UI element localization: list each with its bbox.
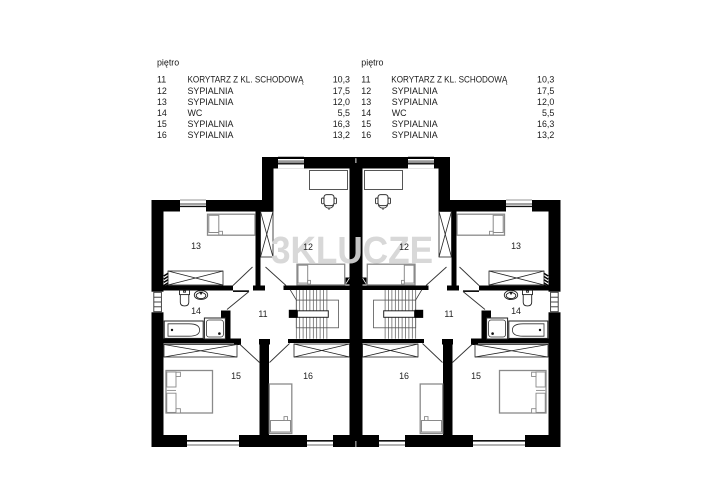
svg-text:KORYTARZ Z KL. SCHODOWĄ: KORYTARZ Z KL. SCHODOWĄ xyxy=(188,75,304,85)
svg-text:16: 16 xyxy=(157,130,167,140)
svg-text:11: 11 xyxy=(361,75,370,85)
svg-text:17,5: 17,5 xyxy=(537,86,554,96)
svg-text:14: 14 xyxy=(157,108,167,118)
svg-text:14: 14 xyxy=(511,306,521,316)
svg-text:WC: WC xyxy=(188,108,203,118)
svg-text:13: 13 xyxy=(361,97,371,107)
svg-text:5,5: 5,5 xyxy=(542,108,554,118)
svg-text:15: 15 xyxy=(471,371,481,381)
svg-text:15: 15 xyxy=(157,119,167,129)
svg-text:17,5: 17,5 xyxy=(333,86,350,96)
svg-text:15: 15 xyxy=(231,371,241,381)
svg-text:12: 12 xyxy=(399,242,409,252)
svg-text:11: 11 xyxy=(157,75,166,85)
svg-text:12: 12 xyxy=(157,86,167,96)
svg-text:KORYTARZ Z KL. SCHODOWĄ: KORYTARZ Z KL. SCHODOWĄ xyxy=(391,75,507,85)
svg-text:13: 13 xyxy=(157,97,167,107)
svg-text:SYPIALNIA: SYPIALNIA xyxy=(188,86,234,96)
svg-text:SYPIALNIA: SYPIALNIA xyxy=(392,130,438,140)
svg-text:16,3: 16,3 xyxy=(333,119,350,129)
svg-text:12: 12 xyxy=(361,86,371,96)
svg-text:SYPIALNIA: SYPIALNIA xyxy=(188,119,234,129)
svg-text:5,5: 5,5 xyxy=(338,108,350,118)
svg-text:SYPIALNIA: SYPIALNIA xyxy=(392,86,438,96)
svg-text:WC: WC xyxy=(392,108,407,118)
svg-text:16: 16 xyxy=(303,371,313,381)
svg-text:16: 16 xyxy=(361,130,371,140)
svg-text:SYPIALNIA: SYPIALNIA xyxy=(392,119,438,129)
svg-text:16: 16 xyxy=(399,371,409,381)
svg-text:12: 12 xyxy=(303,242,313,252)
svg-text:piętro: piętro xyxy=(157,57,179,67)
svg-text:SYPIALNIA: SYPIALNIA xyxy=(188,97,234,107)
svg-text:13: 13 xyxy=(191,241,201,251)
svg-text:SYPIALNIA: SYPIALNIA xyxy=(188,130,234,140)
svg-text:12,0: 12,0 xyxy=(537,97,554,107)
svg-text:14: 14 xyxy=(191,306,201,316)
svg-text:12,0: 12,0 xyxy=(333,97,350,107)
svg-text:SYPIALNIA: SYPIALNIA xyxy=(392,97,438,107)
svg-text:10,3: 10,3 xyxy=(333,75,350,85)
svg-text:14: 14 xyxy=(361,108,371,118)
svg-text:piętro: piętro xyxy=(361,57,383,67)
svg-text:11: 11 xyxy=(258,309,267,319)
svg-text:10,3: 10,3 xyxy=(537,75,554,85)
svg-text:13,2: 13,2 xyxy=(537,130,554,140)
svg-text:11: 11 xyxy=(444,309,453,319)
svg-text:13: 13 xyxy=(511,241,521,251)
svg-text:13,2: 13,2 xyxy=(333,130,350,140)
svg-text:15: 15 xyxy=(361,119,371,129)
svg-text:16,3: 16,3 xyxy=(537,119,554,129)
